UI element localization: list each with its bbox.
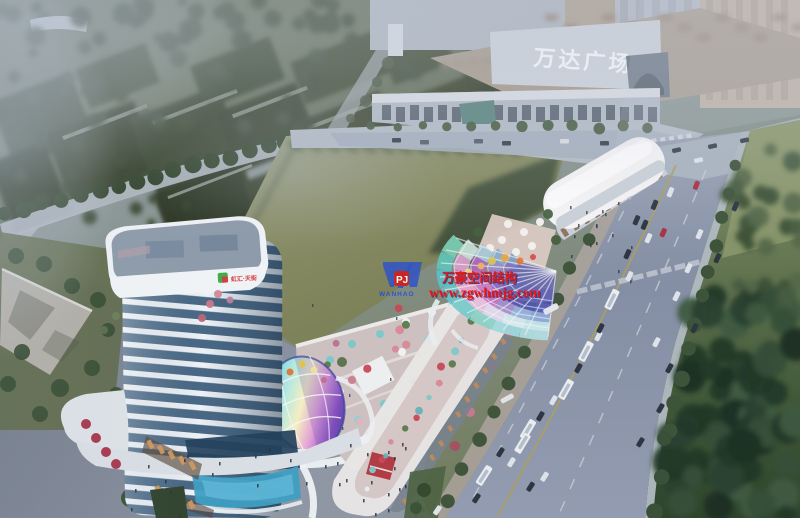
svg-text:www.zgwhmjg.com: www.zgwhmjg.com: [429, 285, 541, 300]
svg-text:万豪空间结构: 万豪空间结构: [441, 270, 517, 285]
svg-text:WANHAO: WANHAO: [379, 291, 415, 298]
svg-text:PJ: PJ: [396, 275, 408, 286]
